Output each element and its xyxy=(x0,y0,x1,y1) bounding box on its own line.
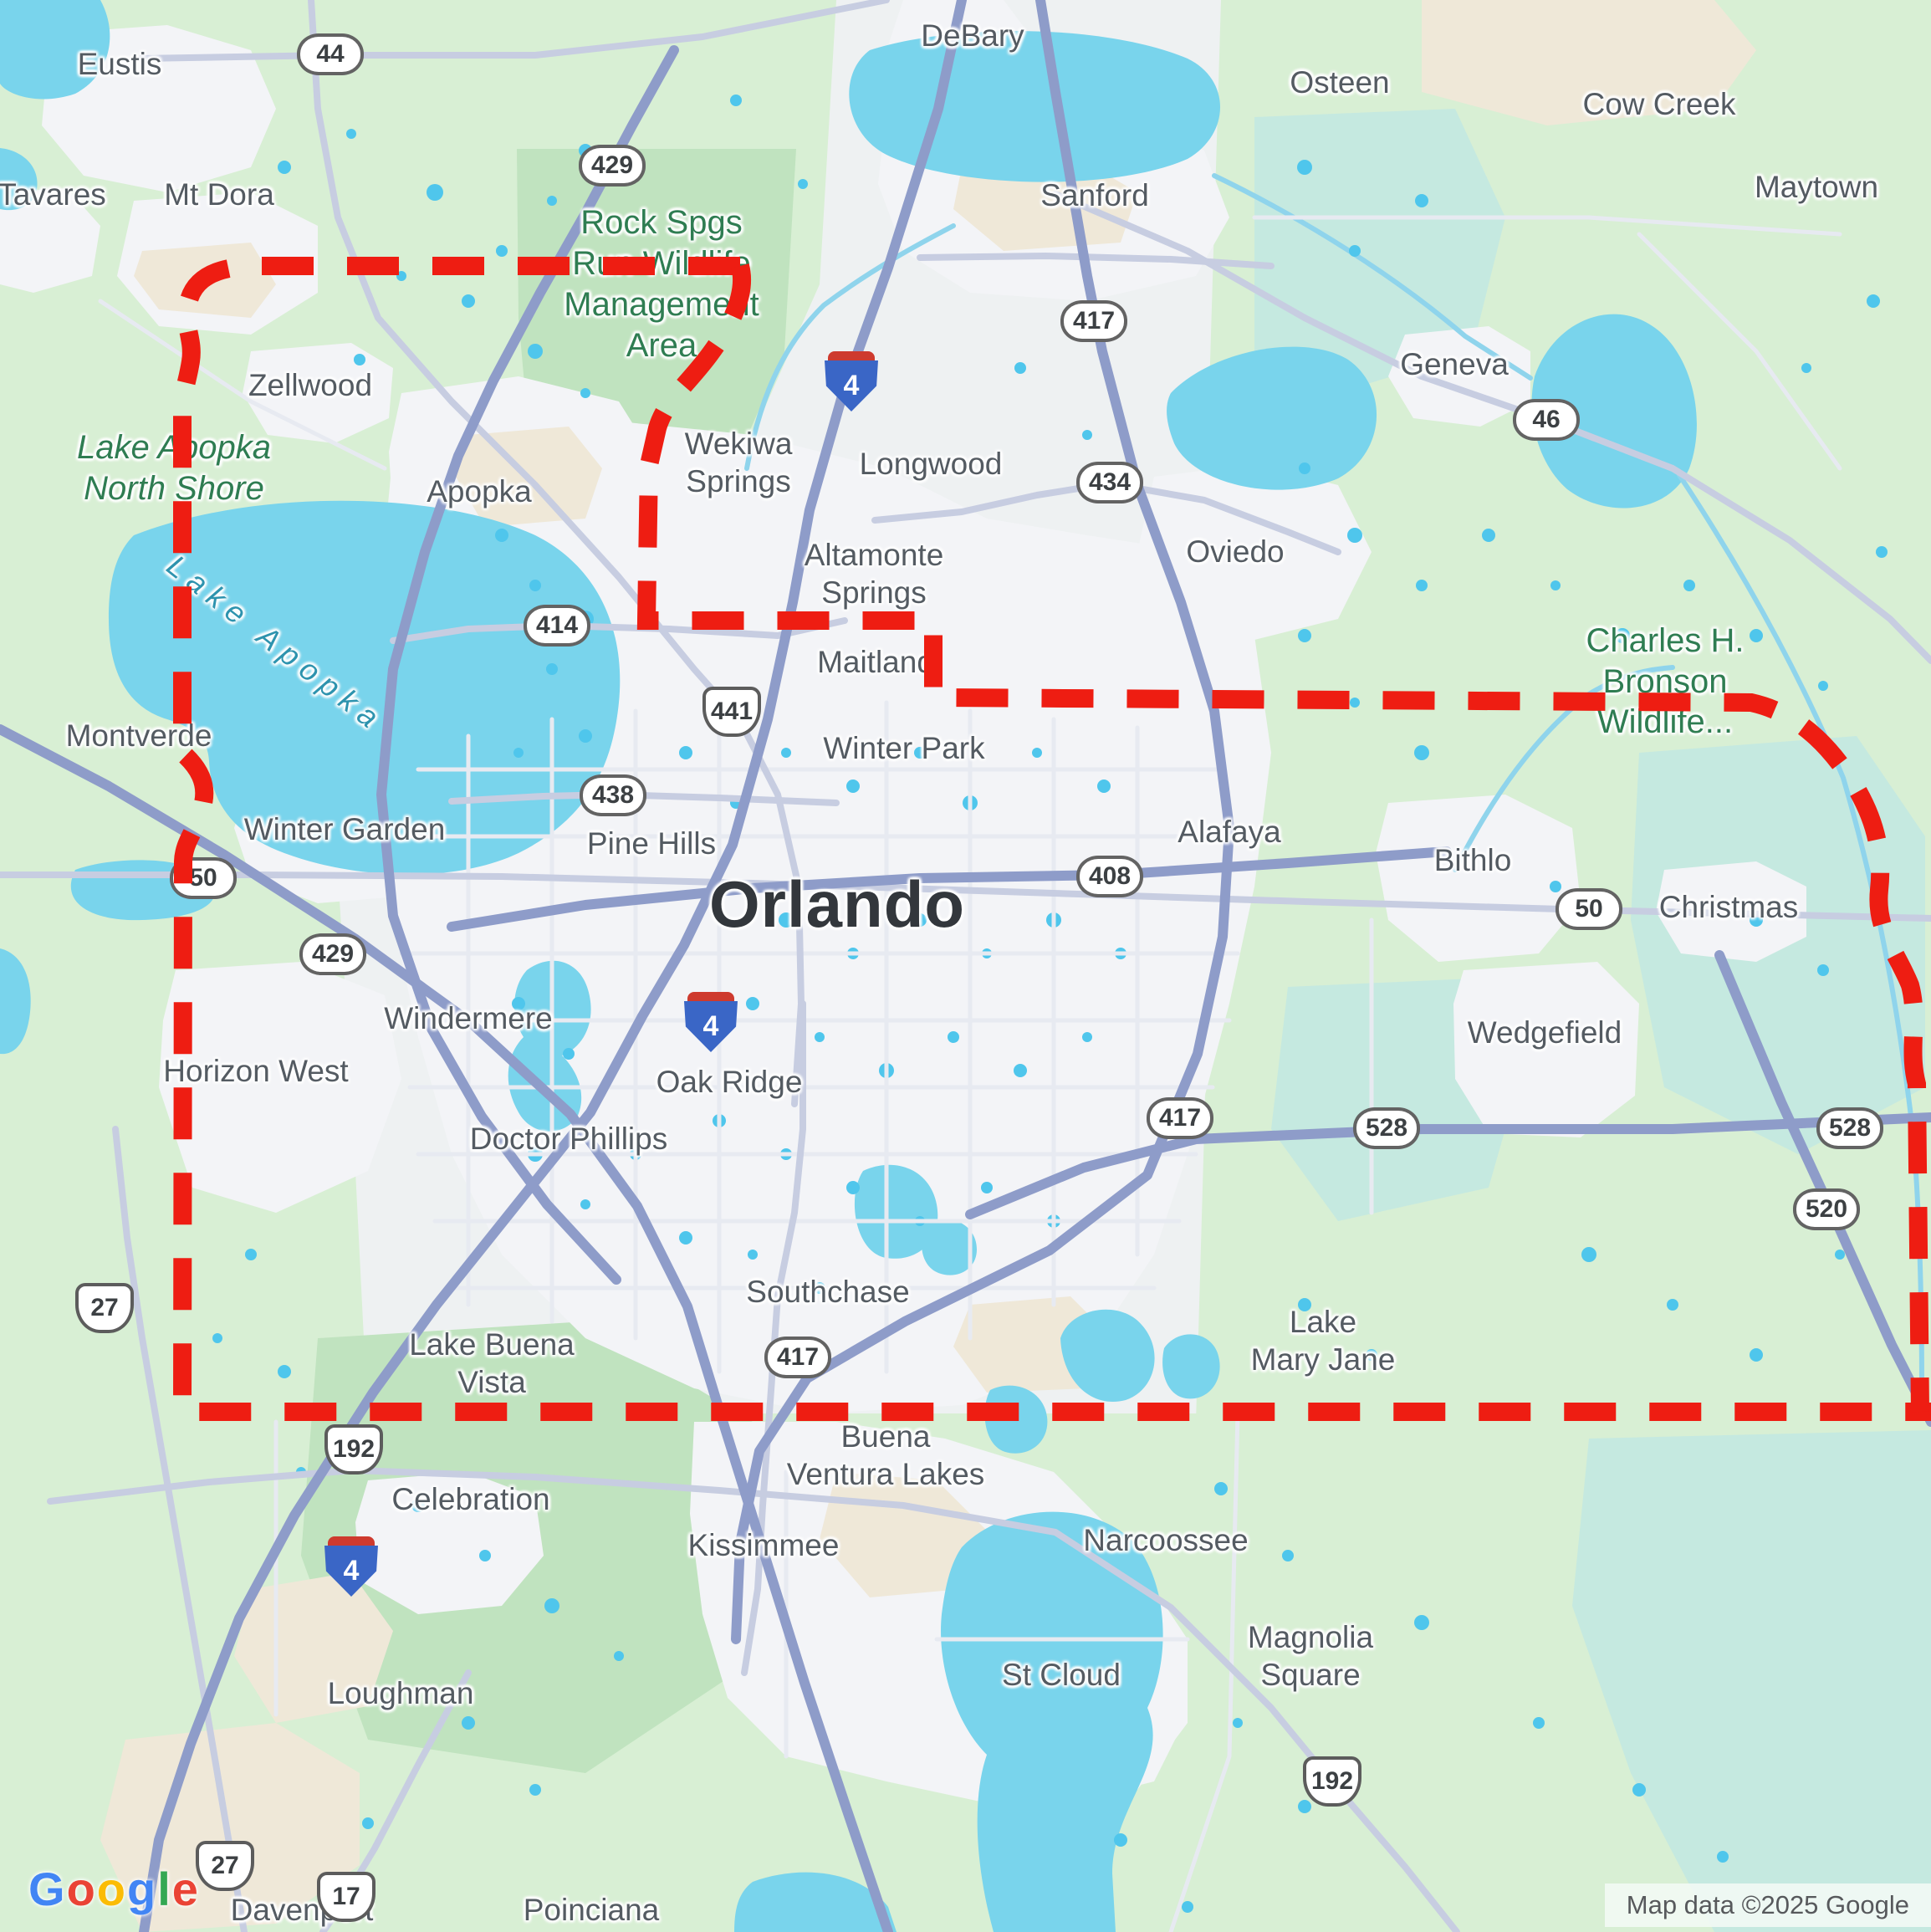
google-logo-letter-5: e xyxy=(172,1863,200,1915)
county-boundary-path-1 xyxy=(646,266,1920,1412)
google-logo[interactable]: Google xyxy=(28,1862,200,1916)
google-logo-letter-0: G xyxy=(28,1863,67,1915)
google-logo-letter-2: o xyxy=(97,1863,127,1915)
map-canvas[interactable]: EustisTavaresMt DoraDeBaryOsteenCow Cree… xyxy=(0,0,1931,1932)
county-boundary-path-0 xyxy=(182,266,1931,1412)
google-logo-letter-4: l xyxy=(157,1863,172,1915)
county-boundary-layer xyxy=(0,0,1931,1932)
google-logo-letter-3: g xyxy=(127,1863,157,1915)
google-logo-letter-1: o xyxy=(67,1863,97,1915)
